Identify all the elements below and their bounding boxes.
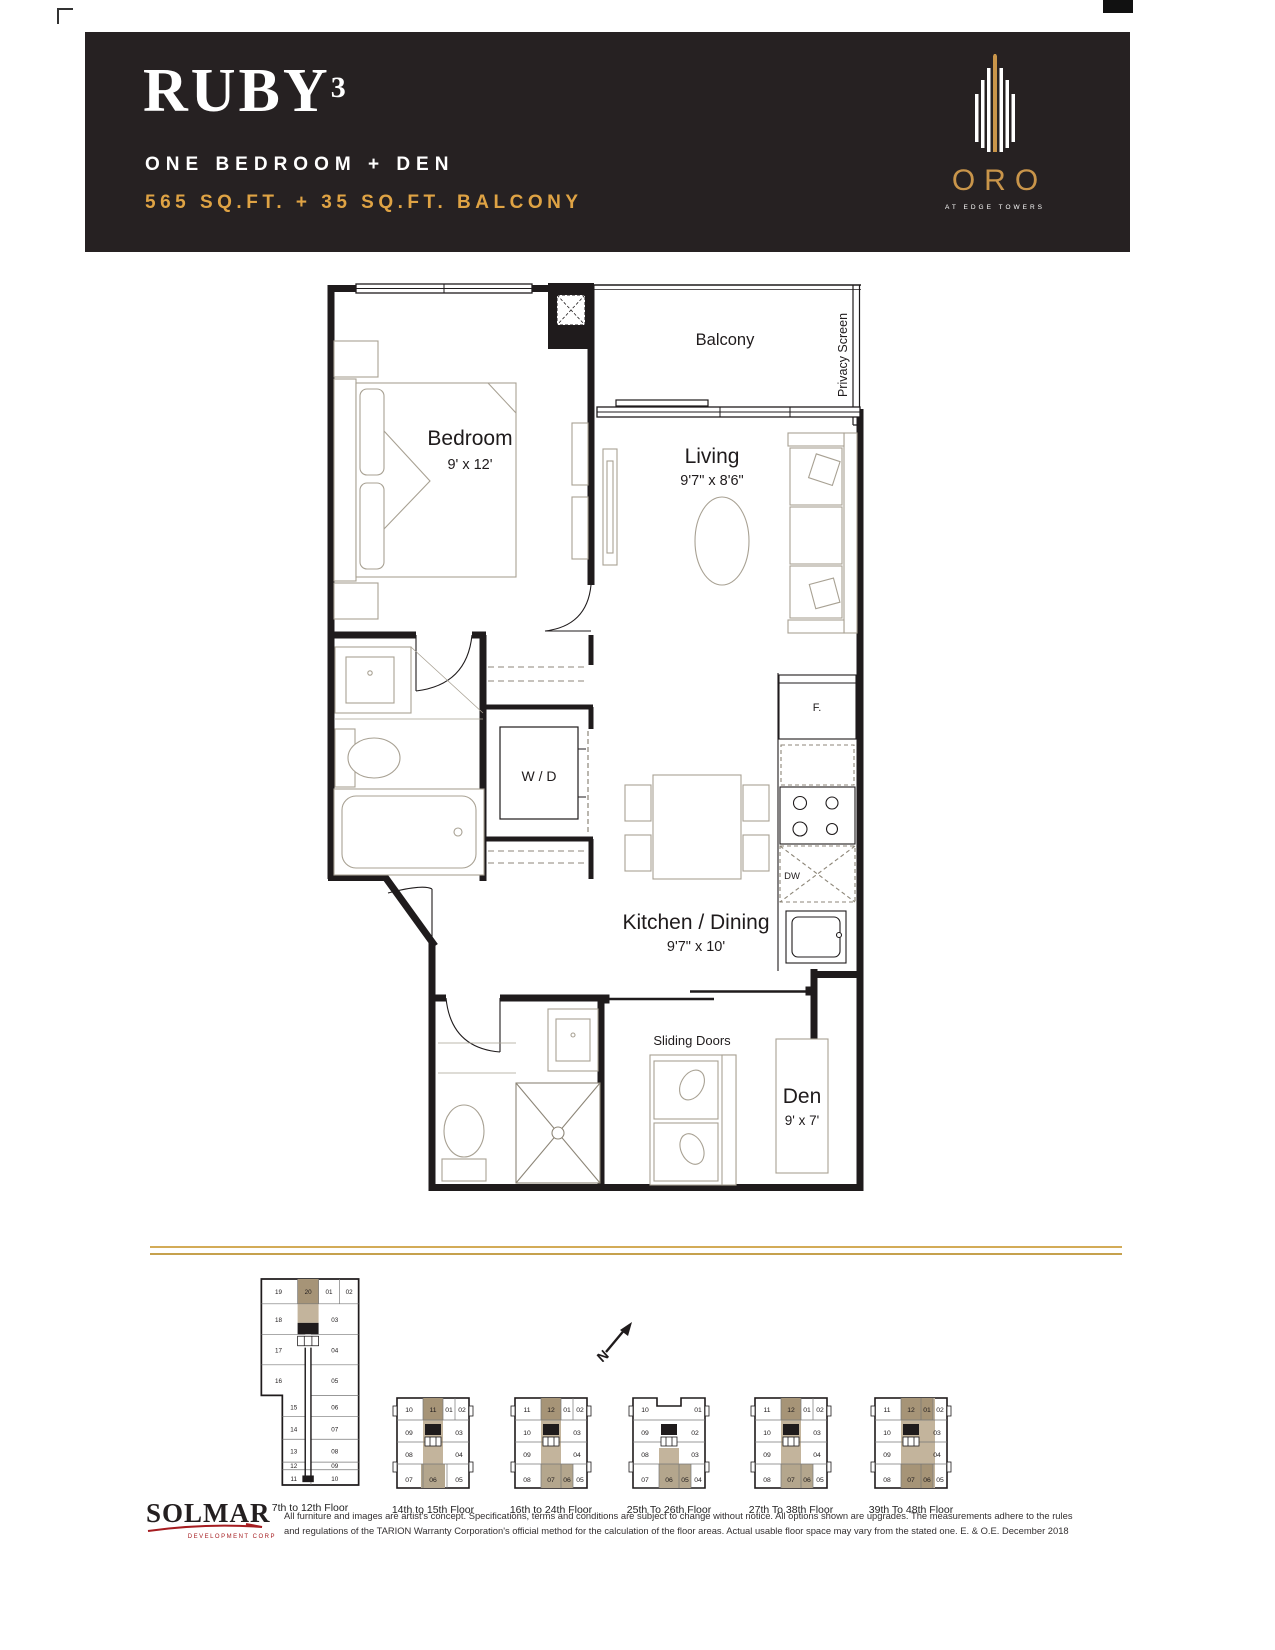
- highlight-unit-lower: [659, 1464, 691, 1488]
- keyplan-7-12: 19 20 01 02 18 17 16 15 14 13 12 03 04 0…: [248, 1266, 372, 1498]
- elevators: [425, 1437, 441, 1446]
- unit-number: 03: [455, 1430, 463, 1437]
- highlight-unit-lower: [781, 1464, 813, 1488]
- keyplan-14-15: 10 11 01 02 09 08 03 04 07 06 05: [383, 1390, 483, 1502]
- burner: [827, 824, 838, 835]
- privacy-screen-label: Privacy Screen: [836, 313, 850, 397]
- gold-separator: [150, 1246, 1122, 1255]
- unit-number: 11: [429, 1407, 436, 1414]
- unit-number: 08: [523, 1477, 531, 1484]
- disclaimer-line-2: and regulations of the TARION Warranty C…: [284, 1523, 1142, 1538]
- powder-sink: [556, 1019, 590, 1061]
- unit-number: 02: [576, 1407, 584, 1414]
- unit-number: 13: [290, 1449, 297, 1456]
- elevators: [298, 1336, 319, 1346]
- living-dims: 9'7" x 8'6": [680, 473, 743, 489]
- burner: [794, 797, 807, 810]
- unit-number: 08: [405, 1452, 413, 1459]
- balcony-rail: [594, 285, 861, 290]
- brand-name: ORO: [930, 164, 1060, 198]
- unit-number: 03: [331, 1317, 338, 1324]
- highlight-unit-lower: [541, 1464, 573, 1488]
- living-window-wall: [597, 400, 860, 417]
- plan-title-superscript: 3: [331, 71, 346, 104]
- burner: [826, 797, 838, 809]
- dining-chair: [625, 785, 651, 821]
- floorplan-drawing: Balcony Privacy Screen Bedroom 9' x 12' …: [320, 283, 868, 1201]
- den-dims: 9' x 7': [785, 1113, 819, 1128]
- oro-logo: ORO AT EDGE TOWERS: [930, 54, 1060, 211]
- unit-number: 10: [331, 1476, 338, 1483]
- unit-number: 07: [907, 1477, 915, 1484]
- shower: [516, 1083, 600, 1183]
- unit-number: 11: [523, 1407, 530, 1414]
- tv-console: [603, 449, 617, 565]
- unit-number: 02: [936, 1407, 944, 1414]
- unit-number: 01: [923, 1407, 931, 1414]
- unit-number: 04: [694, 1477, 702, 1484]
- keyplan-25-26: 10 01 09 08 02 03 07 06 05 04: [619, 1390, 719, 1502]
- unit-number: 04: [455, 1452, 463, 1459]
- dining-chair: [743, 785, 769, 821]
- den-label: Den: [783, 1085, 822, 1108]
- unit-number: 04: [933, 1452, 941, 1459]
- unit-number: 04: [331, 1347, 338, 1354]
- toilet-tank: [442, 1159, 486, 1181]
- pillow: [360, 389, 384, 475]
- unit-number: 06: [665, 1477, 673, 1484]
- sofa: [788, 433, 857, 633]
- unit-number: 02: [458, 1407, 466, 1414]
- hall-closet-top: [488, 667, 588, 681]
- unit-number: 09: [523, 1452, 531, 1459]
- unit-number: 02: [346, 1289, 353, 1296]
- unit-number: 05: [576, 1477, 584, 1484]
- unit-number: 10: [405, 1407, 413, 1414]
- unit-number: 08: [641, 1452, 649, 1459]
- unit-number: 01: [445, 1407, 453, 1414]
- unit-number: 03: [691, 1452, 699, 1459]
- unit-number: 10: [883, 1430, 891, 1437]
- den-sofa-back: [722, 1055, 736, 1185]
- bathroom: [334, 647, 484, 875]
- unit-number: 06: [923, 1477, 931, 1484]
- unit-number: 01: [803, 1407, 811, 1414]
- unit-number: 05: [816, 1477, 824, 1484]
- unit-number: 04: [573, 1452, 581, 1459]
- core: [298, 1323, 319, 1334]
- elevators: [661, 1437, 677, 1446]
- keyplan-16-24: 11 12 01 02 10 09 03 04 08 07 06 05: [501, 1390, 601, 1502]
- unit-number: 12: [547, 1407, 555, 1414]
- core: [661, 1424, 677, 1435]
- core: [783, 1424, 799, 1435]
- kitchen-counter: [778, 673, 856, 971]
- unit-number: 15: [290, 1405, 297, 1412]
- bedroom-window: [356, 284, 532, 293]
- unit-number: 11: [763, 1407, 770, 1414]
- den-sofa: [650, 1055, 736, 1185]
- fridge-label: F.: [813, 702, 822, 714]
- nightstand: [334, 341, 378, 377]
- plan-title: RUBY3: [143, 60, 346, 122]
- unit-number: 14: [290, 1427, 297, 1434]
- brand-tagline: AT EDGE TOWERS: [930, 204, 1060, 211]
- unit-number: 10: [641, 1407, 649, 1414]
- core-lower: [302, 1475, 313, 1482]
- nightstand: [334, 583, 378, 619]
- sofa-back: [844, 433, 857, 633]
- unit-number: 03: [813, 1430, 821, 1437]
- powder-door: [446, 998, 500, 1052]
- unit-number: 12: [787, 1407, 795, 1414]
- unit-number: 01: [694, 1407, 702, 1414]
- elevators: [783, 1437, 799, 1446]
- dining-chair: [625, 835, 651, 871]
- headboard: [334, 379, 356, 581]
- floor-lines: [438, 1043, 516, 1073]
- keyplan-39-48: 11 12 01 02 10 09 03 04 08 07 06 05: [861, 1390, 961, 1502]
- sofa-arm: [788, 620, 844, 633]
- elevators: [543, 1437, 559, 1446]
- dishwasher-label: DW: [784, 871, 800, 882]
- burner: [793, 822, 807, 836]
- unit-number: 08: [763, 1477, 771, 1484]
- disclaimer-line-1: All furniture and images are artist's co…: [284, 1508, 1142, 1523]
- unit-number: 10: [523, 1430, 531, 1437]
- unit-number: 06: [429, 1477, 437, 1484]
- highlight-unit-lower: [421, 1464, 445, 1488]
- bedroom-door: [545, 585, 591, 631]
- print-mark: [1103, 0, 1133, 13]
- solmar-logo: SOLMAR DEVELOPMENT CORP: [146, 1498, 276, 1540]
- unit-number: 17: [275, 1347, 282, 1354]
- unit-number: 02: [816, 1407, 824, 1414]
- bedroom-dresser: [572, 423, 588, 559]
- coffee-table: [695, 497, 749, 585]
- unit-number: 07: [405, 1477, 413, 1484]
- kitchen-dining-dims: 9'7" x 10': [667, 939, 725, 955]
- balcony-label: Balcony: [696, 331, 755, 349]
- unit-number: 12: [290, 1463, 297, 1470]
- toilet-bowl: [444, 1105, 484, 1157]
- highlight-unit-lower: [901, 1464, 933, 1488]
- faucet: [368, 671, 372, 675]
- unit-number: 10: [763, 1430, 771, 1437]
- unit-number: 03: [573, 1430, 581, 1437]
- laundry-label: W / D: [522, 768, 557, 784]
- floorplan-page: RUBY3 ONE BEDROOM + DEN 565 SQ.FT. + 35 …: [0, 0, 1275, 1650]
- core: [425, 1424, 441, 1435]
- unit-number: 07: [787, 1477, 795, 1484]
- unit-number: 09: [763, 1452, 771, 1459]
- elevators: [903, 1437, 919, 1446]
- solmar-subtitle: DEVELOPMENT CORP: [146, 1534, 276, 1540]
- highlight-band: [659, 1448, 679, 1464]
- unit-number: 05: [455, 1477, 463, 1484]
- unit-number: 09: [641, 1430, 649, 1437]
- unit-number: 16: [275, 1378, 282, 1385]
- oro-tower-icon: [967, 54, 1023, 154]
- privacy-screen: [853, 285, 860, 425]
- sofa-cushion: [790, 507, 842, 564]
- unit-number: 03: [933, 1430, 941, 1437]
- unit-number: 11: [883, 1407, 890, 1414]
- faucet: [571, 1033, 575, 1037]
- header-banner: RUBY3 ONE BEDROOM + DEN 565 SQ.FT. + 35 …: [85, 32, 1130, 252]
- unit-number: 08: [883, 1477, 891, 1484]
- balcony-sliding-panel: [616, 400, 708, 406]
- bedroom-label: Bedroom: [427, 427, 512, 450]
- unit-number: 06: [803, 1477, 811, 1484]
- unit-number: 05: [681, 1477, 689, 1484]
- unit-number: 07: [331, 1427, 338, 1434]
- toilet-bowl: [348, 738, 400, 778]
- unit-number: 02: [691, 1430, 699, 1437]
- tub-drain: [454, 828, 462, 836]
- core: [543, 1424, 559, 1435]
- unit-number: 11: [291, 1476, 298, 1483]
- powder-room: [438, 1009, 600, 1183]
- unit-number: 18: [275, 1317, 282, 1324]
- bathroom-door: [416, 635, 472, 691]
- dining-chair: [743, 835, 769, 871]
- bedroom-dims: 9' x 12': [447, 457, 492, 473]
- solmar-name: SOLMAR: [146, 1498, 276, 1529]
- disclaimer-text: All furniture and images are artist's co…: [284, 1508, 1142, 1538]
- unit-number: 19: [275, 1289, 282, 1296]
- bed: [334, 341, 516, 619]
- unit-number: 12: [907, 1407, 915, 1414]
- faucet: [837, 933, 842, 938]
- plan-subtitle: ONE BEDROOM + DEN: [145, 154, 454, 176]
- unit-number: 06: [563, 1477, 571, 1484]
- plan-title-text: RUBY: [143, 57, 331, 125]
- vent-shaft: [548, 283, 594, 349]
- kitchen-dining-label: Kitchen / Dining: [622, 911, 769, 934]
- sofa-arm: [788, 433, 844, 446]
- unit-number: 20: [305, 1289, 312, 1296]
- unit-number: 05: [936, 1477, 944, 1484]
- unit-number: 07: [547, 1477, 555, 1484]
- core: [903, 1424, 919, 1435]
- living-label: Living: [685, 445, 740, 468]
- pillow: [360, 483, 384, 569]
- plan-area: 565 SQ.FT. + 35 SQ.FT. BALCONY: [145, 192, 583, 214]
- sliding-doors-label: Sliding Doors: [653, 1033, 731, 1048]
- north-arrow: N: [596, 1318, 640, 1362]
- hall-closet-bottom: [488, 851, 588, 863]
- stove: [780, 787, 855, 844]
- unit-number: 08: [331, 1449, 338, 1456]
- unit-number: 09: [883, 1452, 891, 1459]
- unit-number: 06: [331, 1405, 338, 1412]
- dining-set: [625, 775, 769, 879]
- upper-cabinet: [781, 745, 854, 785]
- bathroom-sink: [346, 657, 394, 703]
- unit-number: 07: [641, 1477, 649, 1484]
- unit-number: 09: [405, 1430, 413, 1437]
- print-mark: [57, 8, 73, 24]
- unit-number: 01: [326, 1289, 333, 1296]
- unit-number: 09: [331, 1463, 338, 1470]
- sliding-door: [604, 987, 811, 1003]
- kitchen-sink-basin: [792, 917, 840, 957]
- keyplan-27-38: 11 12 01 02 10 09 03 04 08 07 06 05: [741, 1390, 841, 1502]
- dining-table: [653, 775, 741, 879]
- unit-number: 01: [563, 1407, 571, 1414]
- unit-number: 05: [331, 1378, 338, 1385]
- unit-number: 04: [813, 1452, 821, 1459]
